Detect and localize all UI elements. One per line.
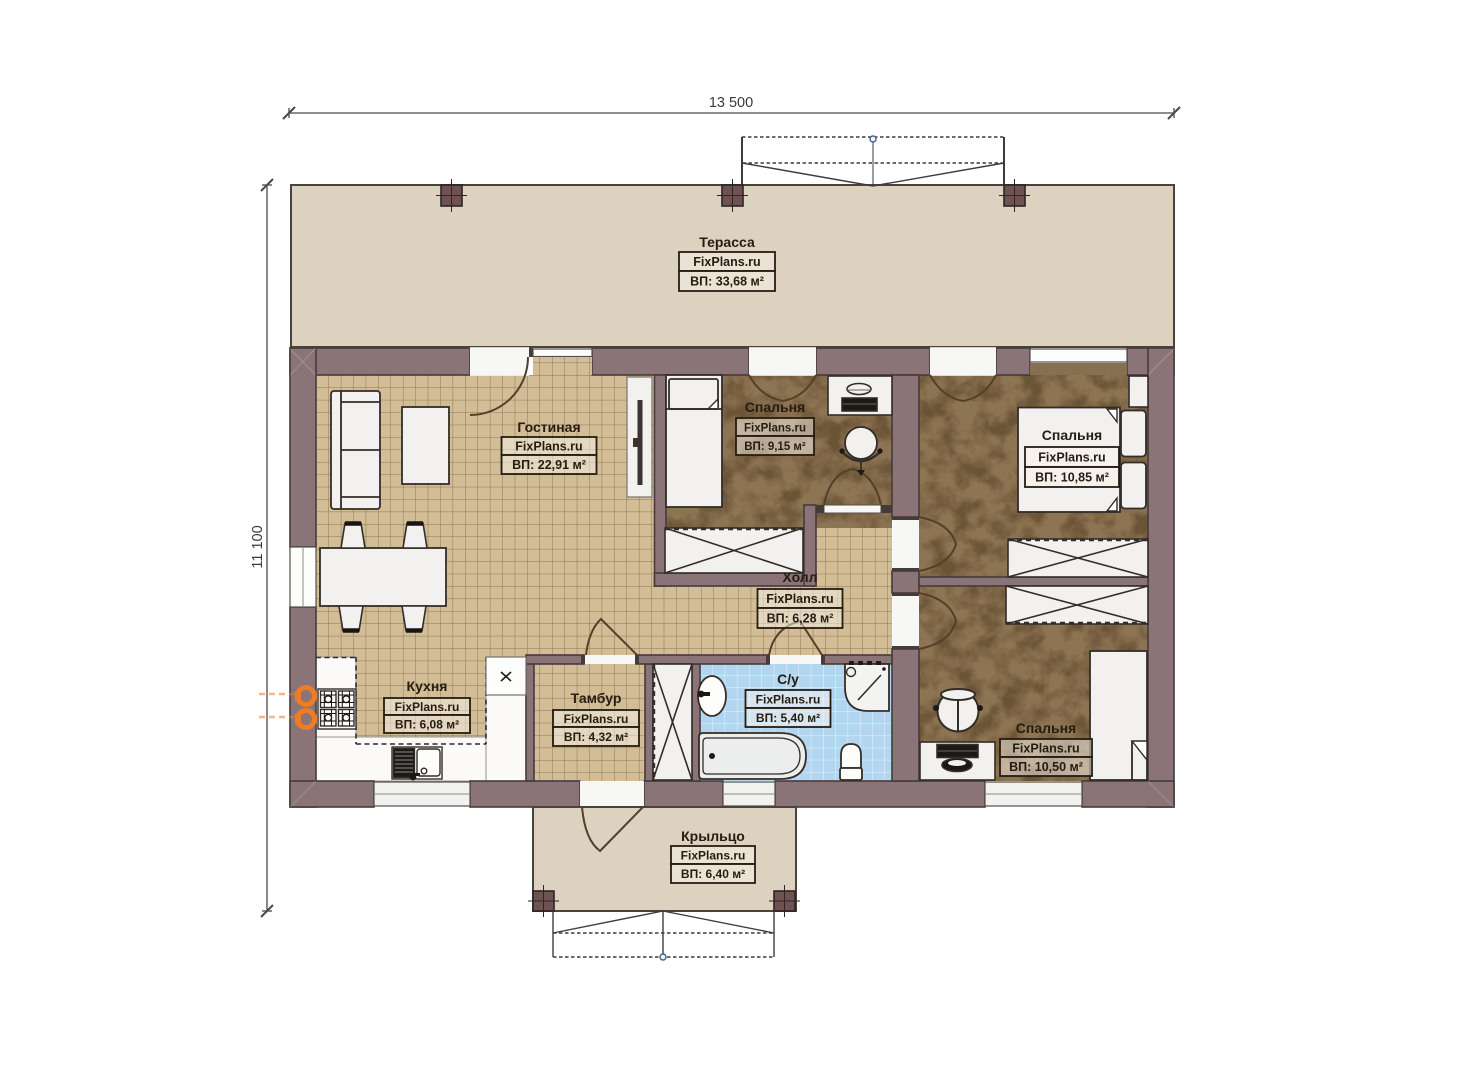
svg-text:ВП: 5,40 м²: ВП: 5,40 м² bbox=[756, 711, 820, 725]
svg-text:Холл: Холл bbox=[782, 569, 817, 585]
svg-text:ВП: 33,68 м²: ВП: 33,68 м² bbox=[690, 275, 764, 289]
svg-text:FixPlans.ru: FixPlans.ru bbox=[744, 423, 806, 435]
svg-text:Тамбур: Тамбур bbox=[571, 690, 622, 706]
svg-text:FixPlans.ru: FixPlans.ru bbox=[1038, 451, 1105, 465]
svg-text:11 100: 11 100 bbox=[250, 525, 266, 568]
svg-text:Спальня: Спальня bbox=[745, 399, 805, 415]
svg-text:Спальня: Спальня bbox=[1042, 427, 1102, 443]
svg-text:ВП: 6,28 м²: ВП: 6,28 м² bbox=[767, 612, 834, 626]
svg-text:FixPlans.ru: FixPlans.ru bbox=[515, 440, 582, 454]
svg-text:Гостиная: Гостиная bbox=[517, 419, 580, 435]
svg-text:Спальня: Спальня bbox=[1016, 720, 1076, 736]
svg-text:FixPlans.ru: FixPlans.ru bbox=[693, 255, 760, 269]
svg-text:Крыльцо: Крыльцо bbox=[681, 828, 745, 844]
svg-text:FixPlans.ru: FixPlans.ru bbox=[564, 712, 629, 726]
svg-text:FixPlans.ru: FixPlans.ru bbox=[395, 700, 460, 714]
svg-text:ВП: 9,15 м²: ВП: 9,15 м² bbox=[744, 441, 806, 453]
svg-text:ВП: 10,50 м²: ВП: 10,50 м² bbox=[1009, 760, 1083, 774]
svg-text:ВП: 22,91 м²: ВП: 22,91 м² bbox=[512, 458, 586, 472]
svg-text:ВП: 4,32 м²: ВП: 4,32 м² bbox=[564, 730, 628, 744]
svg-text:ВП: 6,40 м²: ВП: 6,40 м² bbox=[681, 867, 745, 881]
svg-text:FixPlans.ru: FixPlans.ru bbox=[756, 693, 821, 707]
svg-text:13 500: 13 500 bbox=[709, 95, 753, 111]
svg-text:ВП: 10,85 м²: ВП: 10,85 м² bbox=[1035, 471, 1109, 485]
svg-text:Кухня: Кухня bbox=[407, 678, 448, 694]
svg-text:Терасса: Терасса bbox=[699, 234, 755, 250]
svg-text:ВП: 6,08 м²: ВП: 6,08 м² bbox=[395, 718, 459, 732]
svg-text:FixPlans.ru: FixPlans.ru bbox=[1012, 742, 1079, 756]
svg-text:С/у: С/у bbox=[777, 671, 799, 687]
svg-text:FixPlans.ru: FixPlans.ru bbox=[681, 849, 746, 863]
svg-text:FixPlans.ru: FixPlans.ru bbox=[766, 592, 833, 606]
